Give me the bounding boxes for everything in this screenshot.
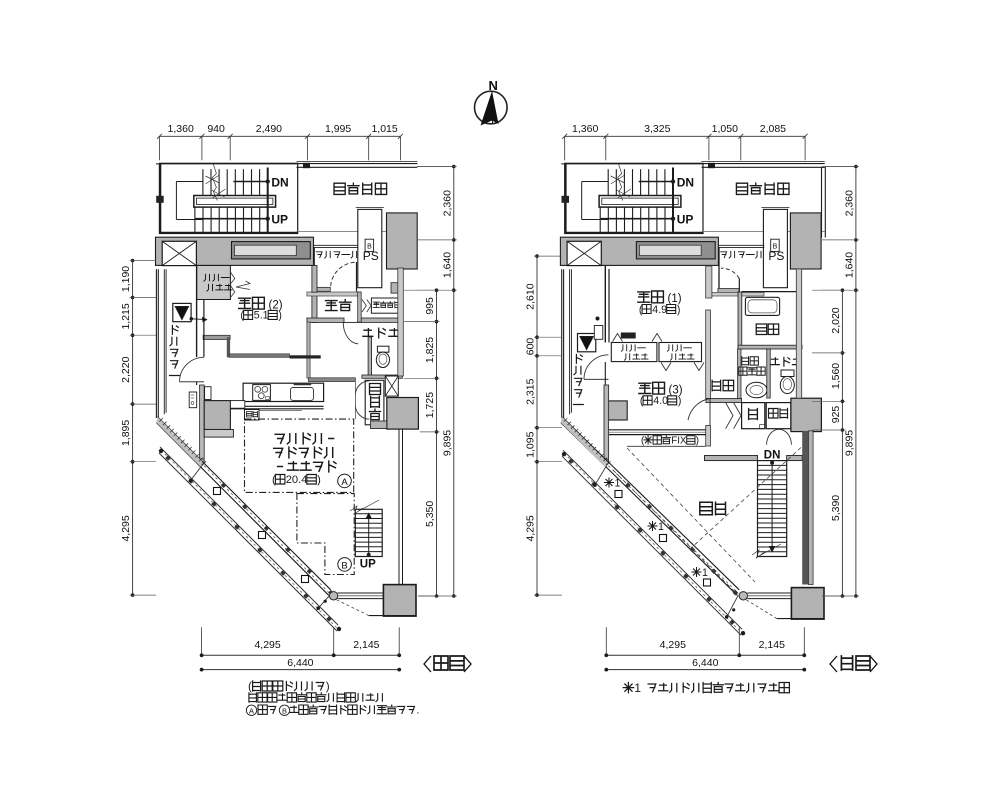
svg-text:): ) <box>278 310 282 322</box>
svg-text:(: ( <box>640 395 644 407</box>
svg-text:2,020: 2,020 <box>830 307 842 333</box>
svg-text:5,350: 5,350 <box>424 501 436 527</box>
svg-text:2,145: 2,145 <box>759 639 785 651</box>
svg-text:A: A <box>249 707 254 716</box>
svg-text:): ) <box>696 435 699 446</box>
svg-text:4,295: 4,295 <box>525 515 537 541</box>
svg-text:A: A <box>341 477 348 488</box>
svg-text:.: . <box>416 705 419 717</box>
svg-text:1,190: 1,190 <box>120 266 132 292</box>
svg-text:): ) <box>326 679 330 693</box>
svg-text:6,440: 6,440 <box>287 657 313 669</box>
svg-text:1,640: 1,640 <box>843 252 855 278</box>
svg-text:(: ( <box>272 474 276 486</box>
svg-text:B: B <box>282 707 287 716</box>
svg-text:1,995: 1,995 <box>325 123 351 135</box>
svg-text:2,610: 2,610 <box>525 283 537 309</box>
svg-text:1,360: 1,360 <box>572 123 598 135</box>
svg-text:6,440: 6,440 <box>692 657 718 669</box>
svg-text:2,490: 2,490 <box>256 123 282 135</box>
svg-text:UP: UP <box>360 559 376 571</box>
svg-text:940: 940 <box>207 123 225 135</box>
svg-text:1,895: 1,895 <box>120 420 132 446</box>
svg-text:B: B <box>341 561 347 572</box>
svg-text:PS: PS <box>768 249 784 263</box>
svg-text:2,085: 2,085 <box>760 123 786 135</box>
svg-text:): ) <box>678 395 682 407</box>
svg-text:4.9: 4.9 <box>652 304 667 316</box>
svg-text:9,895: 9,895 <box>441 430 453 456</box>
svg-text:4.0: 4.0 <box>653 395 668 407</box>
svg-text:1,215: 1,215 <box>120 303 132 329</box>
svg-text:1: 1 <box>658 521 664 533</box>
svg-text:(: ( <box>240 310 244 322</box>
svg-text:2,360: 2,360 <box>843 190 855 216</box>
svg-text:5,390: 5,390 <box>830 495 842 521</box>
svg-text:DN: DN <box>271 176 288 190</box>
svg-text:1,095: 1,095 <box>525 431 537 457</box>
svg-text:1,825: 1,825 <box>424 337 436 363</box>
svg-text:DN: DN <box>677 176 694 190</box>
svg-text:9,895: 9,895 <box>843 430 855 456</box>
svg-text:2,220: 2,220 <box>120 356 132 382</box>
svg-text:4,295: 4,295 <box>660 639 686 651</box>
svg-text:UP: UP <box>677 213 694 227</box>
svg-text:1,640: 1,640 <box>441 252 453 278</box>
svg-text:(: ( <box>248 679 252 693</box>
svg-text:2,315: 2,315 <box>525 378 537 404</box>
svg-text:600: 600 <box>525 338 537 356</box>
svg-text:925: 925 <box>830 406 842 424</box>
svg-text:UP: UP <box>271 213 288 227</box>
svg-text:2,360: 2,360 <box>441 190 453 216</box>
svg-text:1,015: 1,015 <box>371 123 397 135</box>
svg-text:(: ( <box>639 304 643 316</box>
svg-text:2,145: 2,145 <box>353 639 379 651</box>
svg-text:1,050: 1,050 <box>712 123 738 135</box>
svg-text:4,295: 4,295 <box>254 639 280 651</box>
svg-text:PS: PS <box>363 249 379 263</box>
svg-text:1: 1 <box>702 567 708 579</box>
svg-text:DN: DN <box>764 450 781 462</box>
svg-text:5.1: 5.1 <box>254 310 269 322</box>
svg-text:20.4: 20.4 <box>286 474 308 486</box>
svg-text:): ) <box>317 474 321 486</box>
svg-text:3,325: 3,325 <box>644 123 670 135</box>
svg-text:FIX: FIX <box>671 435 687 446</box>
svg-text:1,360: 1,360 <box>168 123 194 135</box>
svg-text:1: 1 <box>615 477 621 489</box>
svg-text:1,725: 1,725 <box>424 392 436 418</box>
svg-text:4,295: 4,295 <box>120 515 132 541</box>
svg-text:995: 995 <box>424 297 436 315</box>
svg-text:1: 1 <box>634 681 641 695</box>
svg-text:1,560: 1,560 <box>830 363 842 389</box>
svg-text:): ) <box>677 304 681 316</box>
